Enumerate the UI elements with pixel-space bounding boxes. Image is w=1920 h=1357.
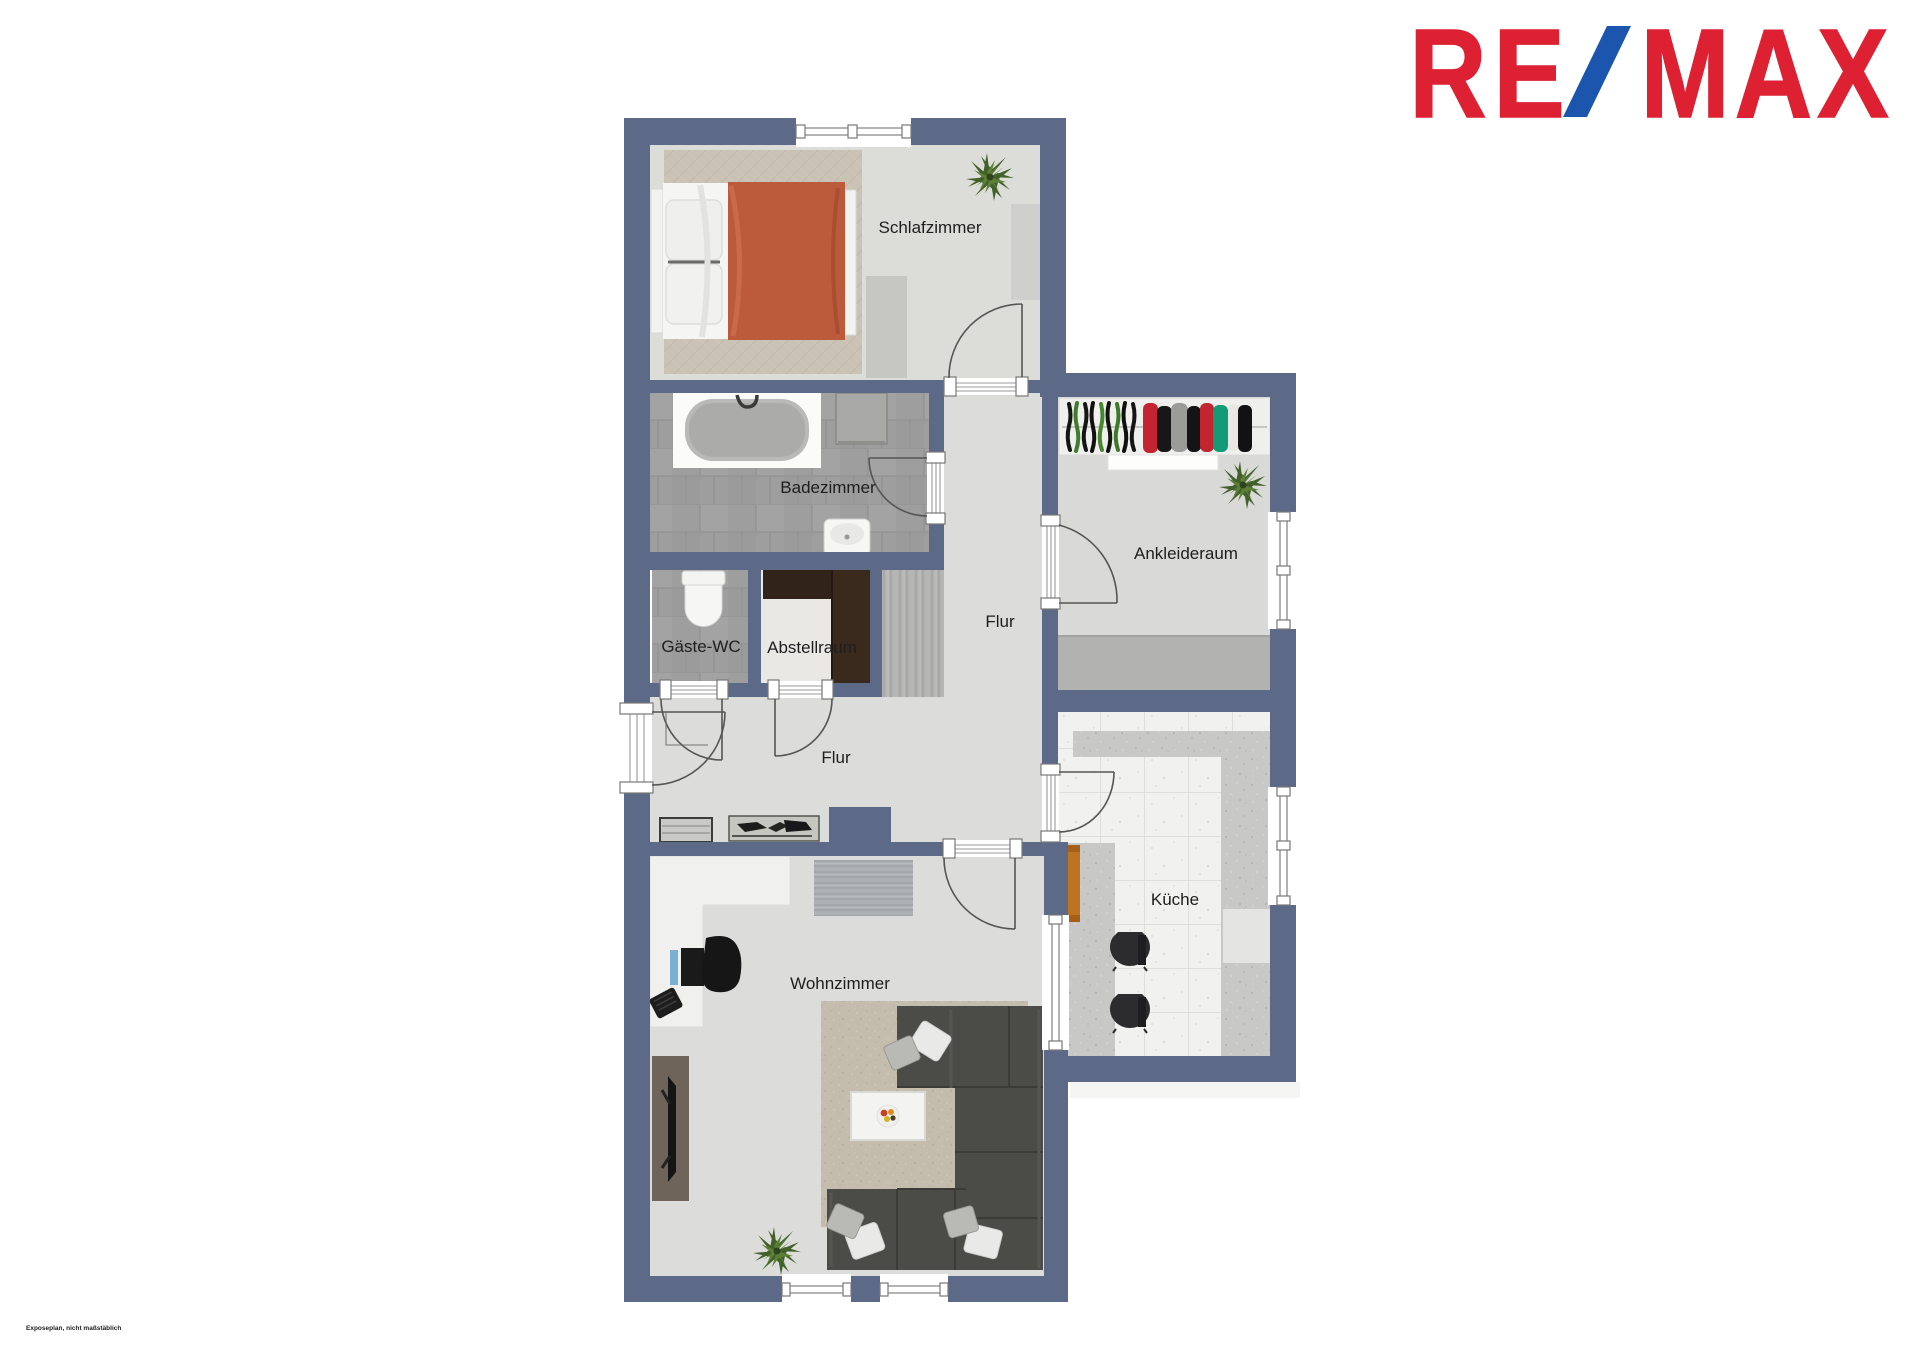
svg-text:Wohnzimmer: Wohnzimmer	[790, 974, 890, 993]
svg-text:Flur: Flur	[985, 612, 1015, 631]
svg-text:MAX: MAX	[1641, 3, 1894, 144]
svg-text:Küche: Küche	[1151, 890, 1199, 909]
svg-text:Ankleideraum: Ankleideraum	[1134, 544, 1238, 563]
svg-text:RE: RE	[1409, 3, 1571, 144]
svg-text:Gäste-WC: Gäste-WC	[661, 637, 740, 656]
svg-text:Abstellraum: Abstellraum	[767, 638, 857, 657]
svg-text:Flur: Flur	[821, 748, 851, 767]
svg-text:Schlafzimmer: Schlafzimmer	[879, 218, 982, 237]
svg-text:Exposeplan, nicht maßstäblich: Exposeplan, nicht maßstäblich	[26, 1325, 121, 1332]
svg-text:Badezimmer: Badezimmer	[780, 478, 876, 497]
